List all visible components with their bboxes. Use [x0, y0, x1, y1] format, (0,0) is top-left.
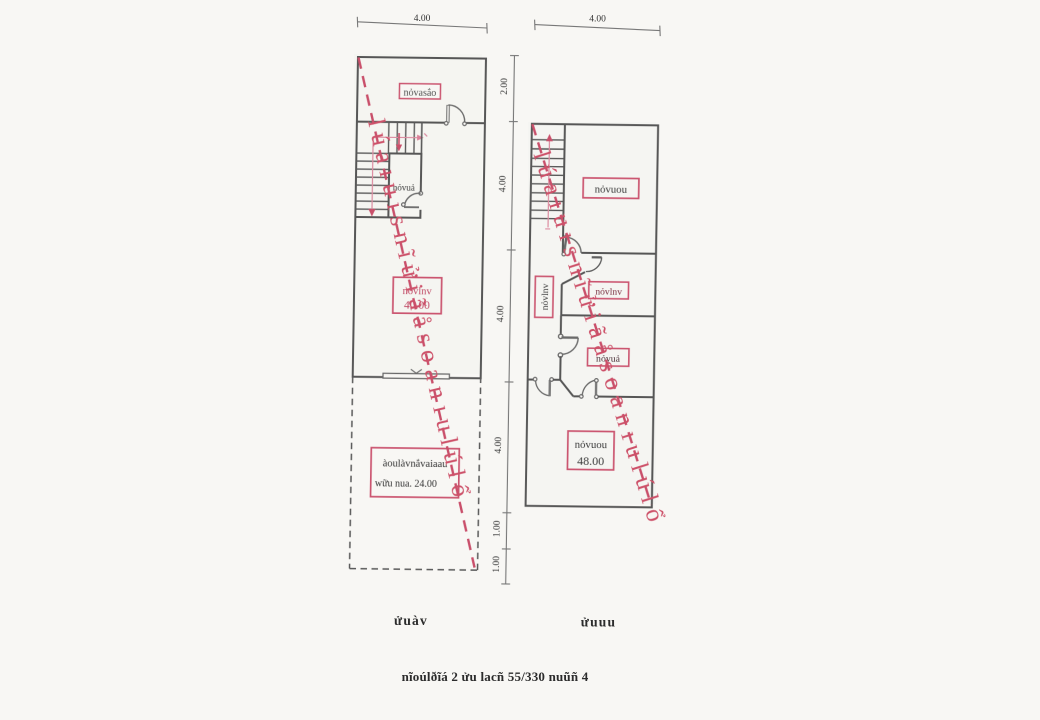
svg-text:ửuàv: ửuàv — [394, 613, 428, 628]
svg-text:nỏvlnv: nỏvlnv — [540, 283, 551, 310]
svg-text:àoulàvnắvaiaau: àoulàvnắvaiaau — [383, 458, 449, 470]
svg-text:4.00: 4.00 — [414, 14, 431, 24]
svg-text:48.00: 48.00 — [577, 454, 604, 468]
svg-text:1.00: 1.00 — [492, 556, 502, 573]
svg-text:4.00: 4.00 — [589, 15, 606, 25]
svg-text:nỏvasắo: nỏvasắo — [403, 87, 436, 98]
svg-text:nĩoúlðĩá 2 ửu lacñ 55/330 nuũñ: nĩoúlðĩá 2 ửu lacñ 55/330 nuũñ 4 — [402, 669, 589, 684]
svg-text:nỏvuou: nỏvuou — [595, 183, 628, 195]
svg-text:4.00: 4.00 — [496, 305, 506, 322]
svg-text:1.00: 1.00 — [493, 520, 503, 537]
svg-text:ửuuu: ửuuu — [581, 615, 616, 630]
svg-text:4.00: 4.00 — [498, 175, 508, 192]
svg-text:2.00: 2.00 — [500, 78, 510, 95]
svg-text:wữu nua. 24.00: wữu nua. 24.00 — [375, 478, 437, 490]
svg-text:4.00: 4.00 — [494, 437, 504, 454]
svg-text:nỏvuou: nỏvuou — [575, 439, 608, 451]
